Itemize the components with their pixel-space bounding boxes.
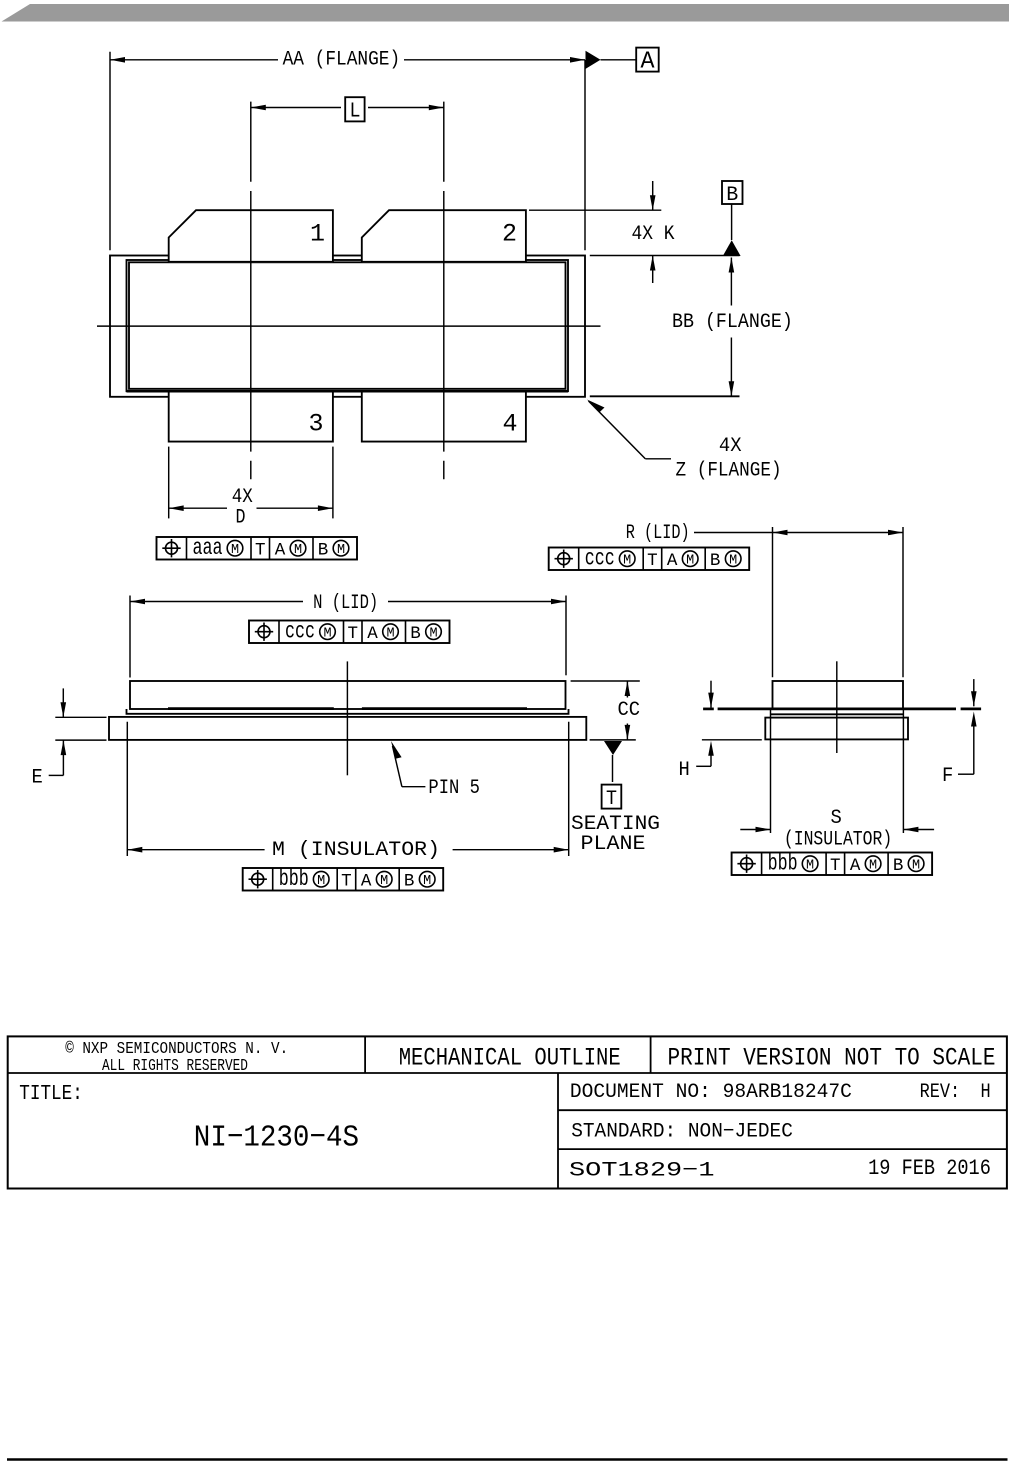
svg-text:aaa: aaa — [193, 535, 223, 561]
svg-text:SOT1829−1: SOT1829−1 — [569, 1159, 715, 1182]
svg-text:TITLE:: TITLE: — [19, 1083, 83, 1106]
svg-text:MECHANICAL OUTLINE: MECHANICAL OUTLINE — [399, 1043, 621, 1072]
svg-text:N (LID): N (LID) — [313, 592, 378, 615]
svg-text:F: F — [942, 765, 953, 788]
svg-text:4X K: 4X K — [632, 223, 676, 246]
svg-text:CC: CC — [618, 699, 641, 722]
svg-text:T: T — [606, 788, 617, 811]
svg-text:R (LID): R (LID) — [626, 522, 690, 545]
svg-text:D: D — [236, 507, 246, 530]
svg-text:B: B — [726, 184, 738, 207]
svg-text:4X: 4X — [719, 435, 742, 458]
svg-text:BB (FLANGE): BB (FLANGE) — [672, 311, 793, 334]
svg-text:(INSULATOR): (INSULATOR) — [784, 829, 892, 852]
svg-text:PLANE: PLANE — [581, 833, 646, 856]
svg-text:S: S — [831, 807, 842, 830]
svg-text:bbb: bbb — [768, 851, 798, 877]
svg-text:3: 3 — [308, 410, 323, 439]
svg-text:ccc: ccc — [585, 546, 615, 572]
svg-text:NI−1230−4S: NI−1230−4S — [194, 1121, 359, 1156]
svg-text:1: 1 — [310, 220, 325, 249]
svg-text:L: L — [350, 100, 361, 124]
svg-text:PIN 5: PIN 5 — [428, 777, 480, 800]
svg-text:AA (FLANGE): AA (FLANGE) — [283, 49, 401, 72]
svg-text:PRINT VERSION NOT TO SCALE: PRINT VERSION NOT TO SCALE — [668, 1043, 996, 1072]
svg-text:H: H — [679, 759, 690, 782]
svg-text:2: 2 — [502, 220, 517, 249]
svg-text:M (INSULATOR): M (INSULATOR) — [272, 839, 440, 862]
svg-text:ALL RIGHTS RESERVED: ALL RIGHTS RESERVED — [102, 1056, 248, 1075]
svg-text:ccc: ccc — [285, 619, 315, 645]
svg-text:bbb: bbb — [279, 866, 309, 892]
svg-text:A: A — [641, 49, 656, 76]
svg-text:DOCUMENT NO: 98ARB18247C: DOCUMENT NO: 98ARB18247C — [570, 1081, 852, 1104]
svg-text:19 FEB 2016: 19 FEB 2016 — [868, 1156, 991, 1181]
svg-text:STANDARD: NON−JEDEC: STANDARD: NON−JEDEC — [571, 1120, 793, 1143]
svg-text:REV: H: REV: H — [920, 1081, 991, 1104]
svg-text:4: 4 — [502, 410, 517, 439]
svg-text:E: E — [32, 767, 43, 790]
svg-text:Z (FLANGE): Z (FLANGE) — [676, 460, 782, 483]
